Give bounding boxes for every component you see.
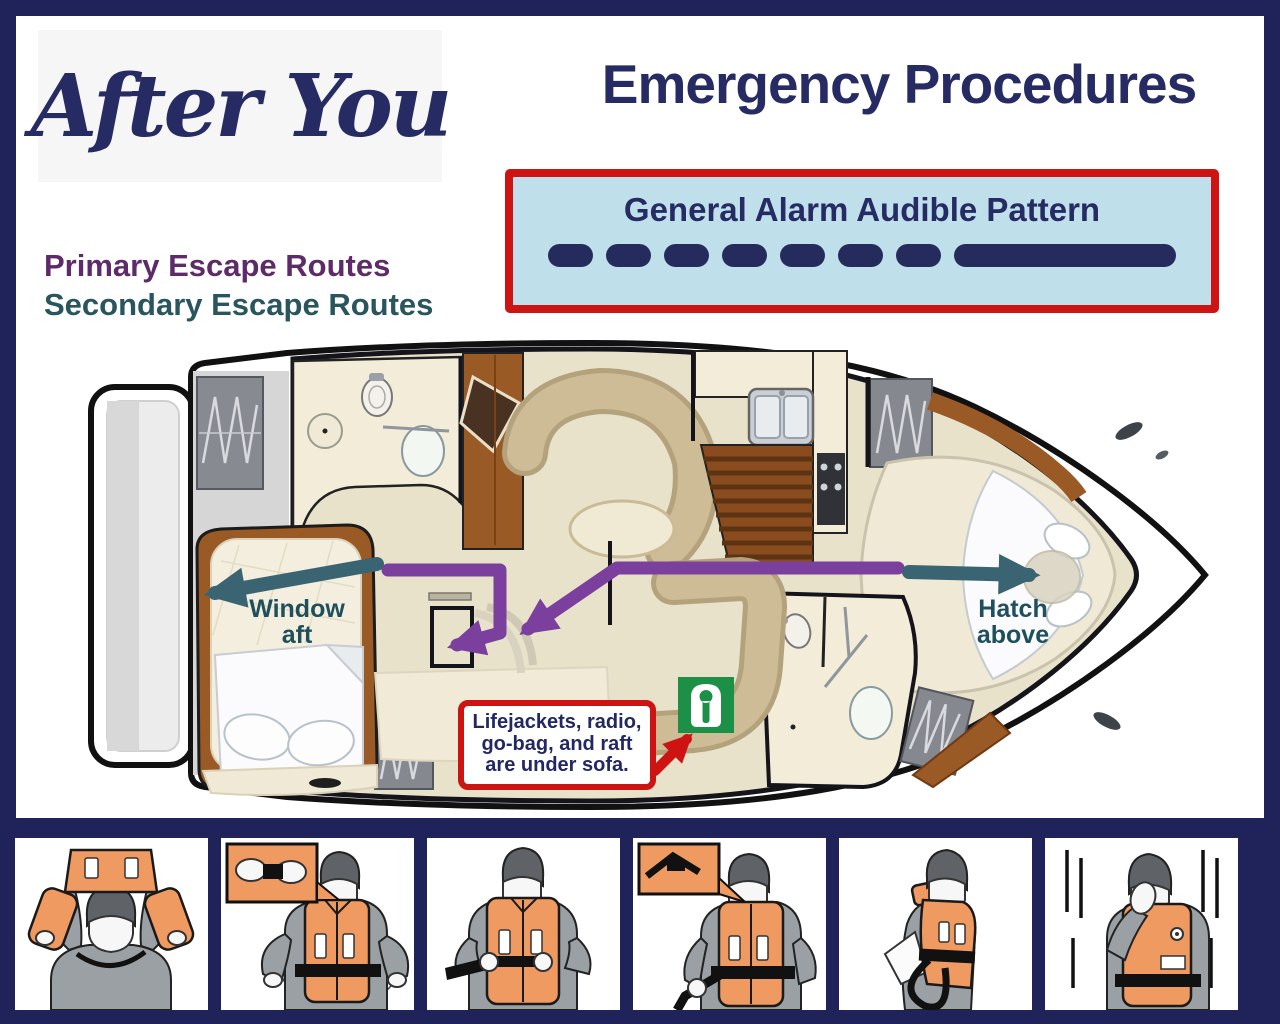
alarm-dash-short bbox=[722, 244, 767, 267]
step-4-secure-strap-end bbox=[633, 838, 826, 1010]
faucet bbox=[369, 373, 384, 381]
alarm-dash-short bbox=[780, 244, 825, 267]
legend-secondary: Secondary Escape Routes bbox=[44, 285, 433, 324]
sink bbox=[362, 378, 392, 416]
boat-logo: After You bbox=[38, 30, 442, 182]
note-line2: go-bag, and raft bbox=[466, 734, 648, 756]
page-title: Emergency Procedures bbox=[546, 52, 1252, 116]
bed-shelf bbox=[203, 765, 377, 795]
alarm-dash-short bbox=[838, 244, 883, 267]
step-2-clip-waist-buckle bbox=[221, 838, 414, 1010]
lifejacket-steps-strip bbox=[15, 838, 1238, 1010]
emergency-poster: { "header": { "boat_name": "After You", … bbox=[0, 0, 1280, 1024]
toilet bbox=[850, 687, 892, 739]
step-1-lift-lifejacket-over-head bbox=[15, 838, 208, 1010]
salon-table bbox=[570, 501, 674, 557]
lifejacket bbox=[65, 850, 157, 892]
route-legend: Primary Escape Routes Secondary Escape R… bbox=[44, 246, 433, 324]
secondary-route-hatch bbox=[909, 572, 1029, 575]
forward-window bbox=[868, 377, 932, 467]
boat-name: After You bbox=[31, 56, 450, 157]
alarm-dash-short bbox=[664, 244, 709, 267]
toilet bbox=[402, 426, 444, 476]
hatch-above-label-line1: Hatch bbox=[978, 595, 1047, 623]
hatch-above-label-line2: above bbox=[977, 621, 1049, 649]
alarm-title: General Alarm Audible Pattern bbox=[513, 191, 1211, 229]
cleat bbox=[1154, 449, 1170, 462]
lifejacket-note: Lifejackets, radio, go-bag, and raft are… bbox=[458, 700, 656, 790]
deck-hatch bbox=[1091, 709, 1123, 734]
step-6-cover-face-before-jumping bbox=[1045, 838, 1238, 1010]
poster-body: After You Emergency Procedures General A… bbox=[16, 16, 1264, 818]
vent bbox=[309, 778, 341, 788]
step-5-pass-strap-behind-back bbox=[839, 838, 1032, 1010]
alarm-dash-long bbox=[954, 244, 1176, 267]
alarm-pattern-box: General Alarm Audible Pattern bbox=[505, 169, 1219, 313]
alarm-dash-short bbox=[896, 244, 941, 267]
alarm-dash-short bbox=[548, 244, 593, 267]
alarm-dash-short bbox=[606, 244, 651, 267]
window-aft-label-line2: aft bbox=[282, 621, 313, 649]
step-3-tighten-waist-strap bbox=[427, 838, 620, 1010]
note-line3: are under sofa. bbox=[466, 755, 648, 777]
window-aft-label-line1: Window bbox=[249, 595, 345, 623]
deck-hatch bbox=[1113, 419, 1145, 444]
legend-primary: Primary Escape Routes bbox=[44, 246, 433, 285]
note-line1: Lifejackets, radio, bbox=[466, 712, 648, 734]
alarm-dash-row bbox=[513, 244, 1211, 267]
transom-ladder-window bbox=[197, 377, 263, 489]
lifejacket-icon bbox=[678, 677, 734, 733]
